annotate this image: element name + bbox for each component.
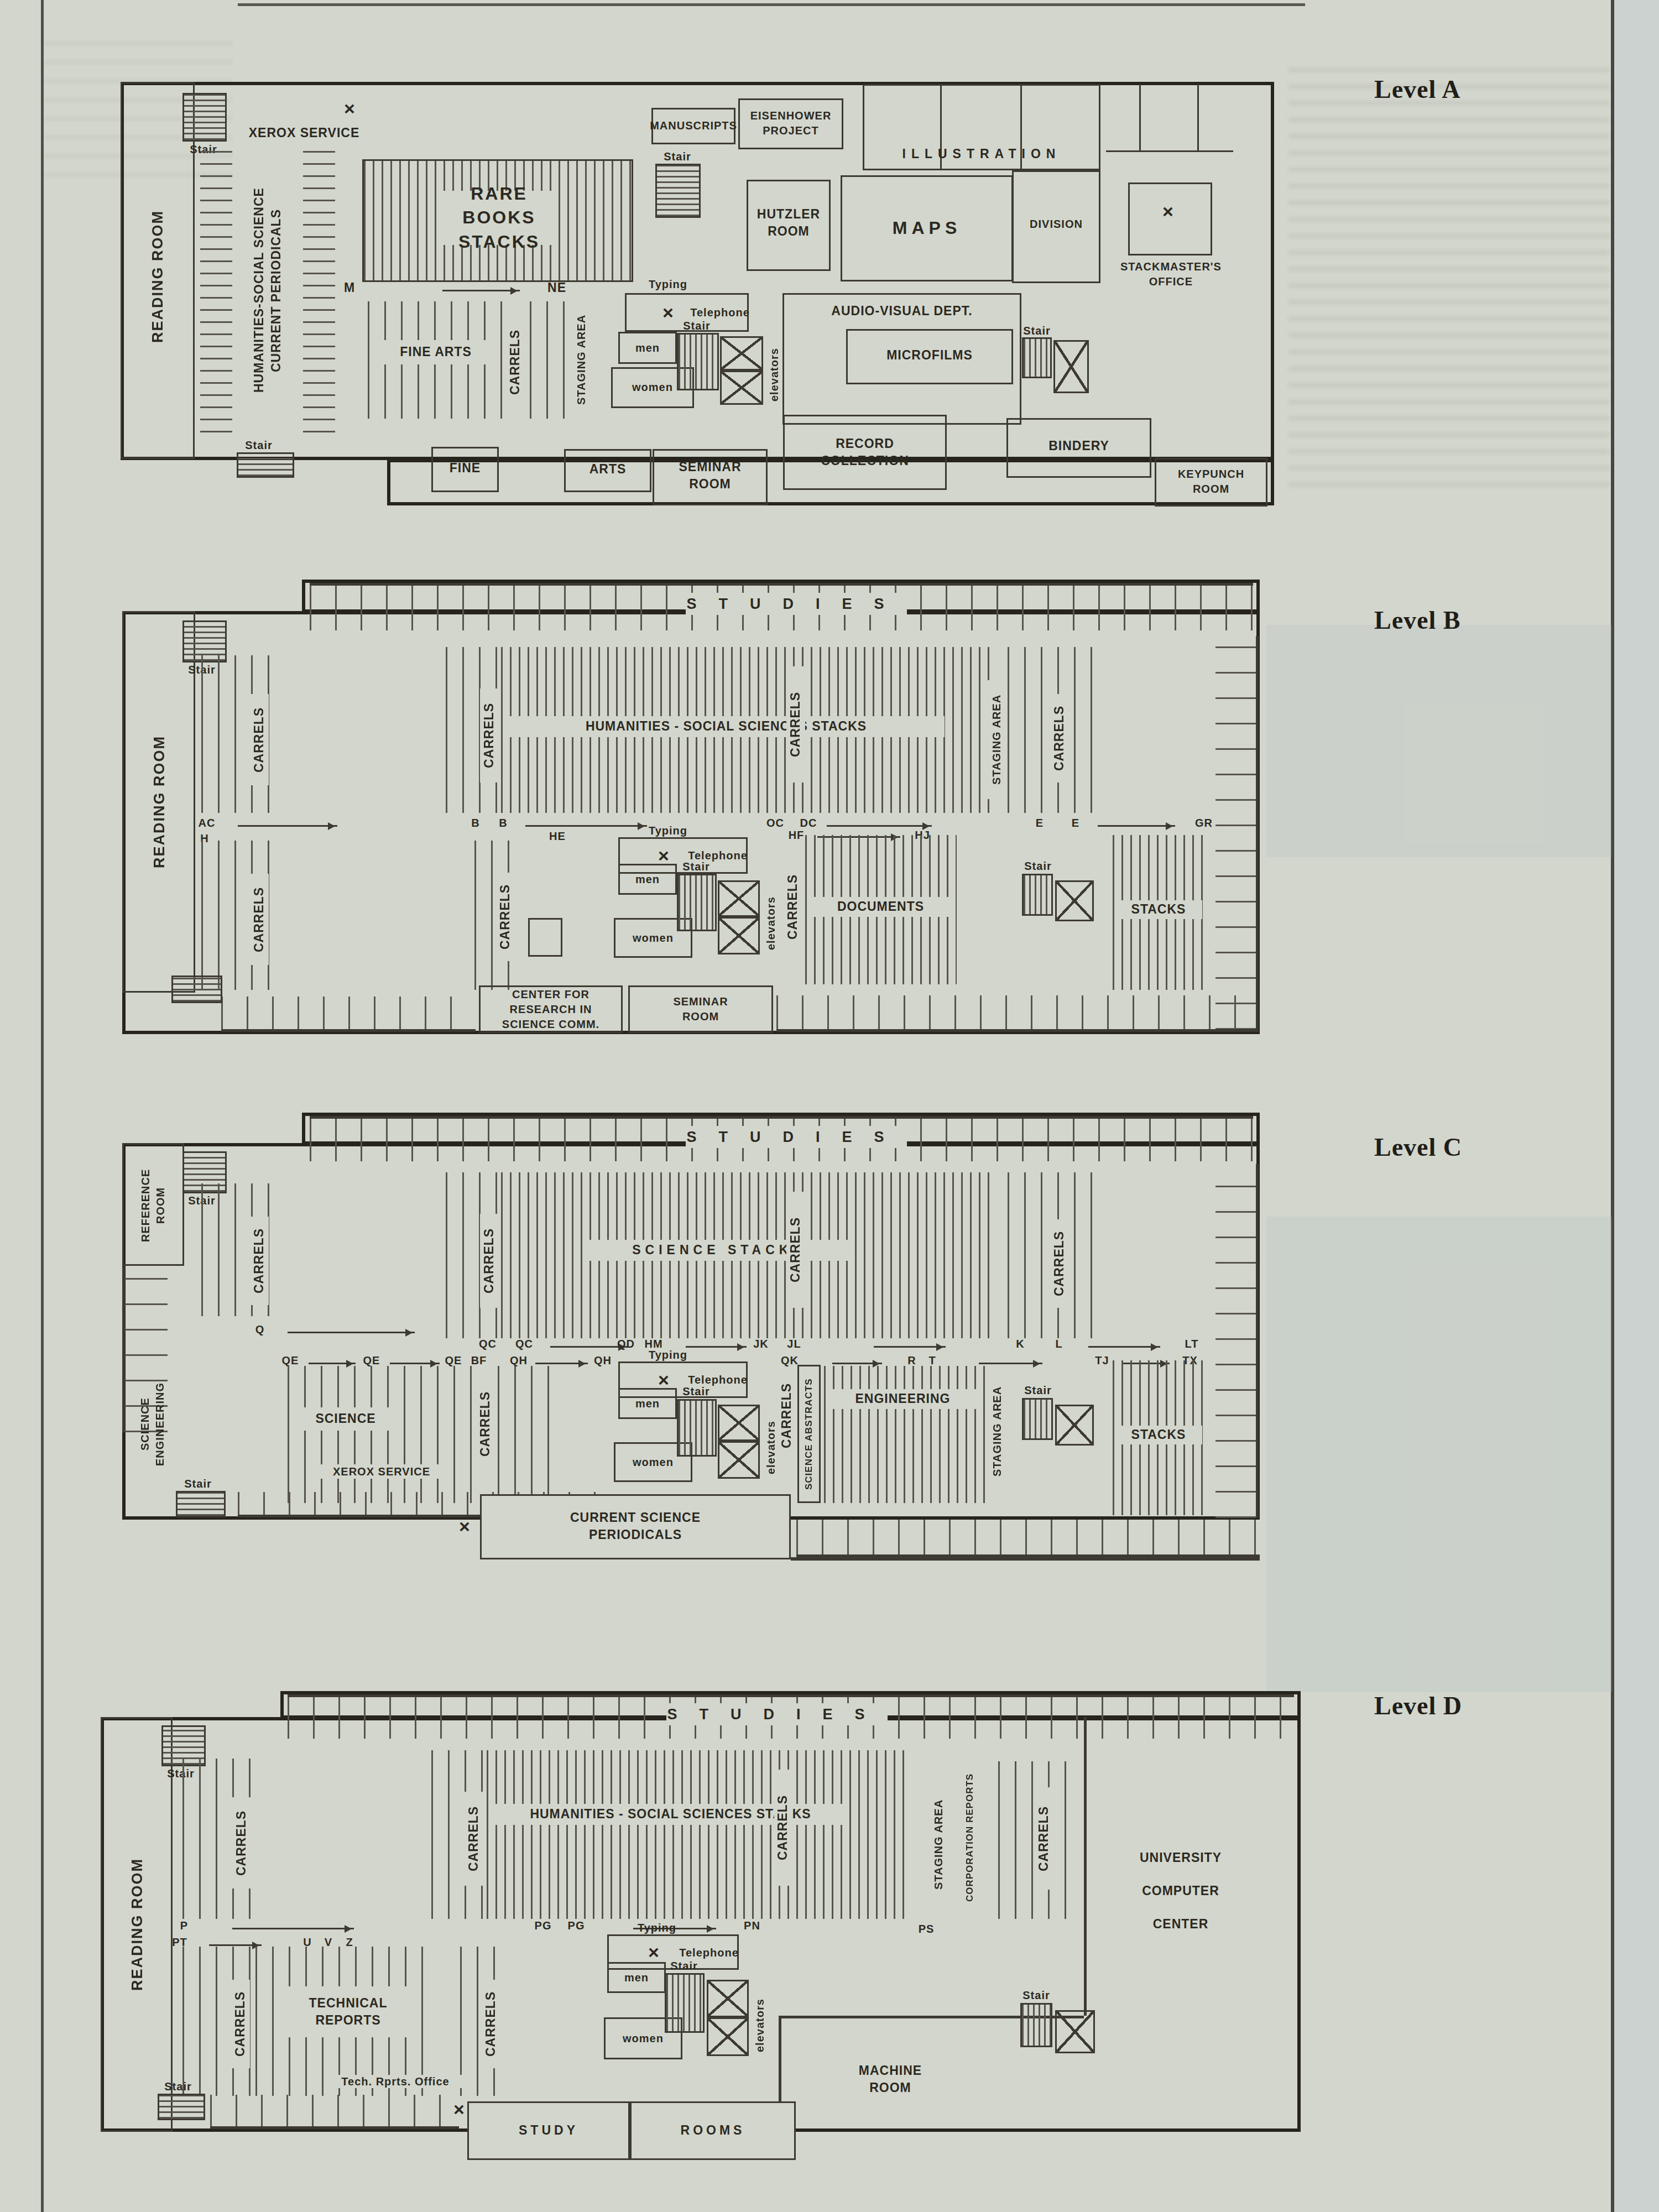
- stair-icon: [1022, 874, 1053, 916]
- staging-area-label: STAGING AREA: [988, 680, 1005, 799]
- carrels-label: CARRELS: [786, 666, 805, 782]
- wall: [1084, 1717, 1087, 2016]
- audio-visual-label: AUDIO-VISUAL DEPT.: [788, 303, 1016, 320]
- room-current-periodicals: HUMANITIES-SOCIAL SCIENCE CURRENT PERIOD…: [237, 166, 299, 415]
- x-mark: ×: [449, 2099, 469, 2119]
- elevator-icon: [707, 1980, 749, 2017]
- small-room: [528, 918, 562, 957]
- x-mark: ×: [338, 97, 361, 119]
- x-mark: ×: [657, 301, 679, 324]
- elevator-icon: [1055, 880, 1094, 921]
- stair-label: Stair: [677, 320, 716, 332]
- keypunch-label: KEYPUNCH ROOM: [1155, 465, 1267, 499]
- wall: [791, 1557, 1260, 1561]
- code-b1: B: [467, 816, 484, 830]
- carrels-label: CARRELS: [1035, 1787, 1053, 1890]
- elevator-icon: [718, 917, 760, 954]
- right-margin-shade: [1614, 0, 1659, 2212]
- flow-arrow: [390, 1363, 440, 1364]
- carrels-label: CARRELS: [480, 1214, 499, 1308]
- xerox-service-label: XEROX SERVICE: [312, 1464, 451, 1479]
- code-qh1: QH: [508, 1354, 530, 1367]
- code-r: R: [904, 1354, 920, 1367]
- carrels-label: CARRELS: [786, 1192, 805, 1308]
- code-qd: QD: [615, 1337, 637, 1350]
- carrel-rows: [498, 1366, 564, 1503]
- stacks-label: STACKS: [1115, 900, 1202, 919]
- studies-row: [221, 997, 476, 1032]
- stair-icon: [1022, 1398, 1053, 1440]
- carrels-label: CARRELS: [779, 1371, 795, 1460]
- carrels-label: CARRELS: [497, 873, 514, 961]
- wall: [1106, 150, 1233, 152]
- staging-area-label: STAGING AREA: [572, 307, 590, 412]
- elevator-icon: [718, 1441, 760, 1479]
- code-oc: OC: [764, 816, 786, 830]
- code-qe3: QE: [442, 1354, 465, 1367]
- stair-label: Stair: [176, 1478, 220, 1490]
- telephone-label: Telephone: [692, 305, 748, 320]
- elevator-icon: [1055, 2010, 1095, 2053]
- code-t: T: [925, 1354, 940, 1367]
- carrels-label: CARRELS: [1051, 1219, 1068, 1308]
- code-pg1: PG: [532, 1919, 554, 1932]
- women-label: women: [614, 1454, 692, 1470]
- x-mark: ×: [643, 1941, 665, 1963]
- stair-label: Stair: [237, 439, 281, 451]
- women-label: women: [614, 930, 692, 946]
- engineering-area: [824, 1366, 985, 1503]
- code-hf: HF: [785, 828, 807, 842]
- code-jk: JK: [751, 1337, 771, 1350]
- men-label: men: [618, 872, 677, 887]
- studies-letters: STUDIES: [686, 593, 907, 615]
- typing-label: Typing: [630, 1921, 684, 1934]
- stair-icon: [677, 333, 719, 390]
- flow-arrow: [1088, 1346, 1160, 1348]
- periodicals-shelving-right: [303, 148, 335, 432]
- men-label: men: [618, 340, 677, 356]
- stair-label: Stair: [1020, 860, 1056, 872]
- microfilms-label: MICROFILMS: [846, 347, 1013, 364]
- elevator-icon: [707, 2017, 749, 2056]
- level-b-title: Level B: [1374, 606, 1460, 635]
- carrels-label: CARRELS: [784, 865, 802, 948]
- typing-label: Typing: [641, 824, 695, 837]
- carrel-row: [530, 301, 568, 419]
- stair-icon: [677, 1399, 717, 1457]
- page-left-edge: [41, 0, 44, 2212]
- carrels-label: CARRELS: [1051, 694, 1068, 782]
- elevator-icon: [718, 1405, 760, 1441]
- carrels-label: CARRELS: [250, 1217, 269, 1305]
- bleedthrough-top-right: [1288, 66, 1609, 487]
- rooms-label: ROOMS: [630, 2121, 796, 2140]
- stair-label: Stair: [677, 1385, 716, 1397]
- corporation-reports-label: CORPORATION REPORTS: [961, 1768, 979, 1907]
- code-e2: E: [1067, 816, 1084, 830]
- study-label: STUDY: [467, 2121, 630, 2140]
- science-engineering-label: SCIENCE ENGINEERING: [132, 1344, 174, 1504]
- code-pn: PN: [741, 1919, 763, 1932]
- studies-column: [1215, 1164, 1259, 1518]
- stair-icon: [655, 164, 701, 218]
- elevators-label: elevators: [763, 885, 779, 962]
- bleedthrough-lower-right: [1266, 1217, 1612, 1692]
- carrels-label: CARRELS: [480, 688, 499, 782]
- flow-arrow: [686, 1346, 747, 1348]
- flow-arrow: [979, 1363, 1042, 1364]
- stair-icon: [237, 452, 294, 478]
- scanned-page: { "page":{ "colors":{"paper":"#d3d6cc","…: [0, 0, 1659, 2212]
- division-label: DIVISION: [1012, 216, 1100, 232]
- x-mark: ×: [455, 1516, 474, 1536]
- women-label: women: [604, 2031, 682, 2046]
- seminar-room-label: SEMINAR ROOM: [653, 458, 768, 493]
- page-top-edge: [238, 3, 1305, 6]
- wall: [1197, 84, 1199, 150]
- record-collection-label: RECORD COLLECTION: [783, 430, 947, 474]
- humanities-stacks-label: HUMANITIES - SOCIAL SCIENCES STACKS: [492, 1804, 849, 1825]
- carrel-rows: [288, 1366, 476, 1503]
- code-qc1: QC: [477, 1337, 499, 1350]
- fine-label: FINE: [431, 460, 499, 477]
- hutzler-label: HUTZLER ROOM: [747, 204, 831, 242]
- carrels-label: CARRELS: [774, 1770, 792, 1886]
- elevators-label: elevators: [763, 1409, 779, 1486]
- flow-arrow: [827, 825, 932, 827]
- manuscripts-label: MANUSCRIPTS: [651, 117, 735, 134]
- stair-icon: [176, 1491, 226, 1517]
- reading-room-d-label: READING ROOM: [115, 1830, 159, 2018]
- stair-icon: [665, 1973, 705, 2033]
- code-ps: PS: [915, 1922, 937, 1936]
- documents-label: DOCUMENTS: [813, 897, 948, 917]
- code-bf: BF: [469, 1354, 489, 1367]
- code-tj: TJ: [1092, 1354, 1112, 1367]
- code-b2: B: [495, 816, 512, 830]
- code-m: M: [340, 281, 359, 295]
- studies-letters: STUDIES: [666, 1703, 888, 1725]
- studies-row: [796, 1520, 1260, 1557]
- x-mark: ×: [1157, 200, 1179, 222]
- center-research-label: CENTER FOR RESEARCH IN SCIENCE COMM.: [479, 988, 623, 1031]
- typing-label: Typing: [641, 278, 695, 291]
- men-label: men: [618, 1396, 677, 1411]
- stair-label: Stair: [1020, 1385, 1056, 1396]
- university-computer-center-label: UNIVERSITY COMPUTER CENTER: [1103, 1825, 1258, 1958]
- studies-row: [210, 2095, 459, 2129]
- code-ac: AC: [195, 816, 219, 830]
- illustration-label: ILLUSTRATION: [863, 145, 1100, 164]
- flow-arrow: [309, 1363, 356, 1364]
- code-jl: JL: [784, 1337, 804, 1350]
- studies-row: [776, 995, 1259, 1032]
- flow-arrow: [874, 1346, 946, 1348]
- elevators-label: elevators: [752, 1985, 768, 2065]
- humanities-stacks-area: [487, 1750, 908, 1919]
- engineering-label: ENGINEERING: [827, 1389, 979, 1409]
- carrels-label: CARRELS: [250, 874, 269, 965]
- code-lt: LT: [1181, 1337, 1203, 1350]
- current-science-periodicals-label: CURRENT SCIENCE PERIODICALS: [480, 1503, 791, 1550]
- fine-arts-label: FINE ARTS: [380, 340, 491, 364]
- stair-icon: [158, 2094, 205, 2120]
- flow-arrow: [525, 825, 647, 827]
- stair-icon: [1022, 337, 1052, 378]
- stair-label: Stair: [665, 1960, 703, 1972]
- flow-arrow: [238, 825, 337, 827]
- code-ne: NE: [545, 281, 569, 295]
- science-stacks-label: SCIENCE STACKS: [583, 1240, 854, 1261]
- staging-area-label: STAGING AREA: [989, 1370, 1005, 1492]
- code-he: HE: [546, 830, 568, 843]
- carrels-label: CARRELS: [477, 1380, 494, 1468]
- stacks-label: STACKS: [1115, 1426, 1202, 1444]
- stair-icon: [182, 93, 227, 142]
- code-pg2: PG: [565, 1919, 587, 1932]
- elevator-icon: [718, 880, 760, 917]
- flow-arrow: [288, 1332, 415, 1333]
- telephone-label: Telephone: [681, 1945, 737, 1960]
- code-k: K: [1012, 1337, 1029, 1350]
- code-q: Q: [252, 1323, 268, 1336]
- xerox-service-label: XEROX SERVICE: [238, 126, 371, 140]
- code-gr: GR: [1192, 816, 1216, 830]
- level-a-title: Level A: [1374, 75, 1460, 104]
- science-label: SCIENCE: [299, 1407, 393, 1431]
- code-p: P: [176, 1919, 192, 1932]
- carrels-label: CARRELS: [465, 1792, 483, 1886]
- flow-arrow: [535, 1363, 588, 1364]
- seminar-room-label: SEMINAR ROOM: [628, 990, 773, 1029]
- flow-arrow: [1098, 825, 1175, 827]
- flow-arrow: [442, 290, 520, 291]
- reference-room-label: REFERENCE ROOM: [131, 1159, 176, 1253]
- reading-room-b-label: READING ROOM: [137, 708, 181, 896]
- code-e1: E: [1031, 816, 1048, 830]
- stackmaster-label: STACKMASTER'S OFFICE: [1100, 259, 1241, 290]
- men-label: men: [607, 1970, 666, 1985]
- level-c-title: Level C: [1374, 1133, 1462, 1162]
- stair-label: Stair: [677, 860, 716, 873]
- humanities-stacks-label: HUMANITIES - SOCIAL SCIENCES STACKS: [508, 716, 945, 737]
- bleedthrough-mid-right: [1266, 625, 1612, 857]
- studies-column: [1215, 636, 1259, 1030]
- elevator-icon: [720, 336, 763, 371]
- staging-area-label: STAGING AREA: [930, 1785, 947, 1904]
- code-qe2: QE: [361, 1354, 383, 1367]
- elevator-icon: [1053, 340, 1089, 393]
- carrels-label: CARRELS: [506, 318, 525, 406]
- carrels-label: CARRELS: [482, 1980, 500, 2068]
- periodicals-shelving-left: [200, 148, 232, 432]
- stair-icon: [1020, 2003, 1052, 2047]
- x-mark: ×: [653, 844, 675, 867]
- carrels-label: CARRELS: [231, 1980, 250, 2068]
- carrels-label: CARRELS: [250, 694, 269, 785]
- stair-icon: [677, 874, 717, 931]
- stair-label: Stair: [653, 150, 702, 163]
- maps-label: MAPS: [841, 218, 1013, 238]
- eisenhower-label: EISENHOWER PROJECT: [738, 105, 843, 142]
- code-l: L: [1051, 1337, 1067, 1350]
- x-mark: ×: [653, 1369, 675, 1391]
- elevator-icon: [720, 371, 763, 405]
- tech-reports-office-label: Tech. Rprts. Office: [329, 2075, 462, 2088]
- elevator-icon: [1055, 1405, 1094, 1446]
- stair-label: Stair: [1019, 1990, 1054, 2001]
- reading-room-a-label: READING ROOM: [132, 155, 184, 398]
- machine-room-label: MACHINE ROOM: [824, 2054, 957, 2104]
- typing-label: Typing: [641, 1348, 695, 1361]
- page-right-edge: [1611, 0, 1614, 2212]
- level-d-title: Level D: [1374, 1691, 1462, 1720]
- carrels-label: CARRELS: [232, 1797, 251, 1888]
- arts-label: ARTS: [564, 461, 651, 478]
- flow-arrow: [209, 1944, 262, 1946]
- studies-letters: STUDIES: [686, 1126, 907, 1148]
- code-qe1: QE: [279, 1354, 301, 1367]
- stair-icon: [171, 975, 222, 1003]
- flow-arrow: [232, 1928, 354, 1929]
- elevators-label: elevators: [766, 337, 782, 412]
- flow-arrow: [832, 1363, 882, 1364]
- code-qh2: QH: [592, 1354, 614, 1367]
- code-qc2: QC: [513, 1337, 535, 1350]
- rare-books-label: RARE BOOKS STACKS: [440, 191, 559, 245]
- stair-label: Stair: [1019, 325, 1055, 336]
- stair-label: Stair: [156, 2080, 200, 2093]
- technical-reports-label: TECHNICAL REPORTS: [283, 1986, 413, 2037]
- science-abstracts-label: SCIENCE ABSTRACTS: [800, 1367, 818, 1501]
- wall: [1139, 84, 1141, 150]
- bindery-label: BINDERY: [1006, 438, 1151, 455]
